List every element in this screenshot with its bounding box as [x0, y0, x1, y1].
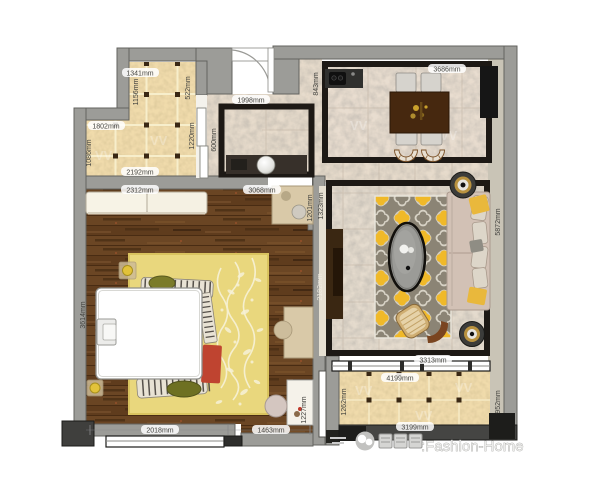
svg-text:843mm: 843mm [313, 72, 320, 96]
svg-text:952mm: 952mm [495, 390, 502, 414]
svg-text:3686mm: 3686mm [433, 67, 460, 74]
svg-text:2018mm: 2018mm [146, 428, 173, 435]
svg-text:1086mm: 1086mm [86, 139, 93, 166]
svg-text:1201mm: 1201mm [307, 194, 314, 221]
svg-text:2312mm: 2312mm [126, 188, 153, 195]
svg-text:1220mm: 1220mm [189, 122, 196, 149]
svg-text:1227mm: 1227mm [301, 396, 308, 423]
svg-text:1262mm: 1262mm [341, 388, 348, 415]
svg-text:1802mm: 1802mm [92, 124, 119, 131]
svg-text:VV: VV [95, 148, 113, 163]
svg-text:VV: VV [355, 383, 373, 398]
svg-text:3614mm: 3614mm [80, 301, 87, 328]
svg-text:VV: VV [415, 408, 433, 423]
svg-text::Fashion-Home: :Fashion-Home [421, 438, 524, 455]
svg-text:3313mm: 3313mm [419, 358, 446, 365]
svg-text:5872mm: 5872mm [495, 208, 502, 235]
svg-text:1323mm: 1323mm [318, 192, 325, 219]
svg-text:VV: VV [350, 118, 368, 133]
svg-text:1156mm: 1156mm [133, 78, 140, 105]
svg-text:522mm: 522mm [185, 76, 192, 100]
svg-text:1998mm: 1998mm [237, 98, 264, 105]
svg-text:VV: VV [150, 133, 168, 148]
svg-text:VV: VV [455, 380, 473, 395]
svg-text:3199mm: 3199mm [401, 425, 428, 432]
svg-text:600mm: 600mm [211, 128, 218, 152]
svg-text:3068mm: 3068mm [248, 188, 275, 195]
svg-text:1463mm: 1463mm [257, 428, 284, 435]
svg-text:2182mm: 2182mm [317, 273, 324, 300]
svg-text:2192mm: 2192mm [126, 170, 153, 177]
svg-text:4199mm: 4199mm [386, 376, 413, 383]
svg-text:1341mm: 1341mm [126, 71, 153, 78]
